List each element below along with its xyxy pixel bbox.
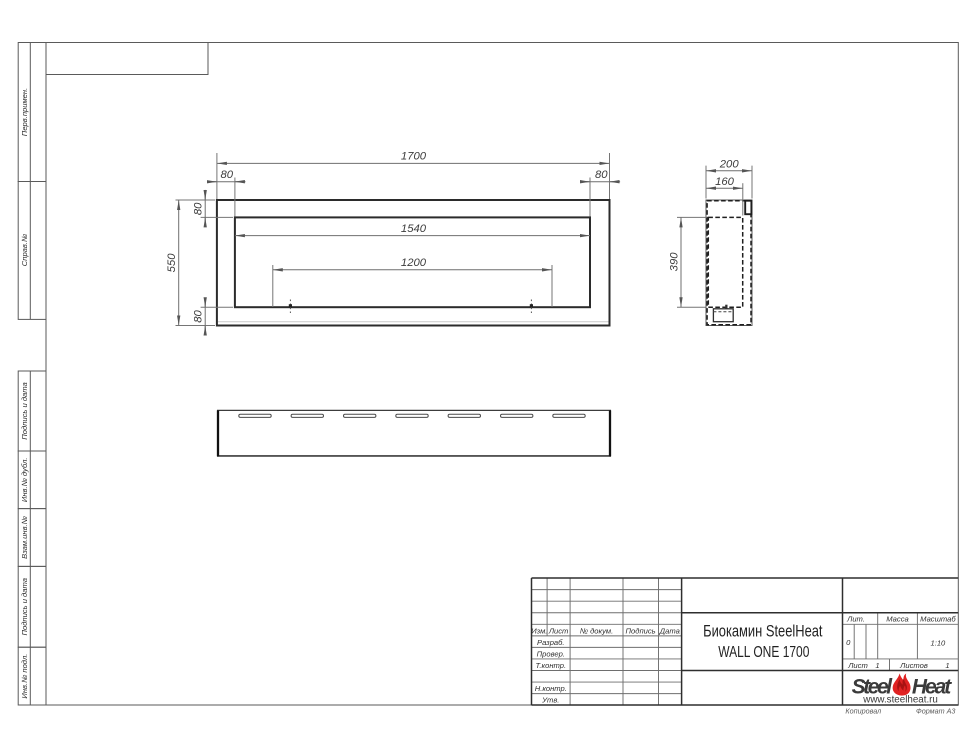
svg-text:Копировал: Копировал (845, 706, 881, 715)
svg-text:80: 80 (595, 169, 608, 181)
svg-text:Листов: Листов (899, 661, 928, 670)
svg-text:Утв.: Утв. (541, 696, 559, 705)
svg-text:WALL ONE 1700: WALL ONE 1700 (718, 642, 809, 660)
svg-text:Лист: Лист (847, 661, 868, 670)
svg-text:550: 550 (166, 253, 178, 273)
svg-text:Лист: Лист (548, 626, 569, 635)
svg-text:Подпись и дата: Подпись и дата (20, 382, 29, 439)
svg-text:Биокамин SteelHeat: Биокамин SteelHeat (703, 622, 823, 641)
svg-text:390: 390 (669, 252, 681, 272)
svg-text:№ докум.: № докум. (580, 626, 613, 635)
svg-text:Лит.: Лит. (846, 615, 865, 624)
svg-text:1:10: 1:10 (931, 638, 947, 647)
svg-text:Взам.инв.№: Взам.инв.№ (20, 516, 29, 559)
svg-text:1540: 1540 (401, 223, 427, 235)
svg-text:Н.контр.: Н.контр. (535, 684, 567, 693)
svg-text:Масштаб: Масштаб (920, 615, 956, 624)
svg-text:1700: 1700 (401, 151, 427, 163)
svg-text:Разраб.: Разраб. (537, 638, 564, 647)
svg-text:Инв.№ подл.: Инв.№ подл. (20, 654, 29, 699)
svg-text:80: 80 (193, 202, 205, 215)
svg-text:Провер.: Провер. (537, 650, 565, 659)
svg-text:200: 200 (719, 158, 740, 170)
svg-text:Т.контр.: Т.контр. (535, 661, 566, 670)
svg-text:Дата: Дата (659, 626, 680, 635)
svg-text:Подпись и дата: Подпись и дата (20, 578, 29, 635)
svg-text:80: 80 (193, 310, 205, 323)
svg-text:1: 1 (875, 661, 879, 670)
svg-text:Подпись: Подпись (626, 626, 656, 635)
svg-text:1: 1 (945, 661, 949, 670)
svg-text:Масса: Масса (886, 615, 908, 624)
svg-text:Справ.№: Справ.№ (20, 234, 29, 266)
svg-text:160: 160 (715, 176, 735, 188)
svg-text:1200: 1200 (401, 257, 427, 269)
svg-text:Перв.примен.: Перв.примен. (20, 88, 29, 136)
svg-text:Изм.: Изм. (531, 626, 547, 635)
svg-text:Инв.№ дубл.: Инв.№ дубл. (20, 458, 29, 503)
svg-text:80: 80 (221, 169, 234, 181)
svg-text:Формат А3: Формат А3 (916, 706, 955, 715)
svg-text:www.steelheat.ru: www.steelheat.ru (862, 694, 938, 705)
